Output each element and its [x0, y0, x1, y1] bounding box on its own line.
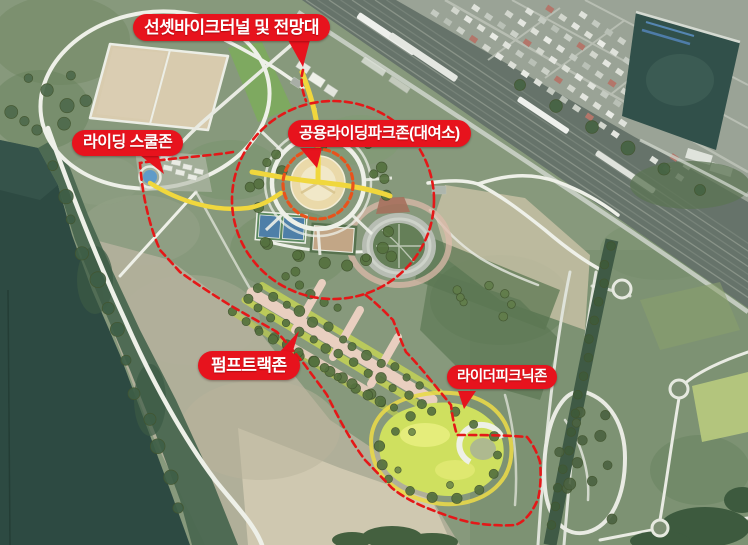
- callout-public-riding-park-zone: 공용라이딩파크존(대여소): [288, 120, 471, 147]
- amphitheater-seating: [376, 197, 410, 214]
- callout-rider-picnic-zone: 라이더피크닉존: [447, 365, 557, 389]
- aerial-map: 선셋바이크터널 및 전망대 라이딩 스쿨존 공용라이딩파크존(대여소) 펌프트랙…: [0, 0, 748, 545]
- callout-pump-track-zone: 펌프트랙존: [198, 351, 300, 380]
- callout-sunset-bike-tunnel: 선셋바이크터널 및 전망대: [133, 14, 330, 41]
- callout-riding-school-zone: 라이딩 스쿨존: [72, 130, 183, 156]
- map-artwork: [0, 0, 748, 545]
